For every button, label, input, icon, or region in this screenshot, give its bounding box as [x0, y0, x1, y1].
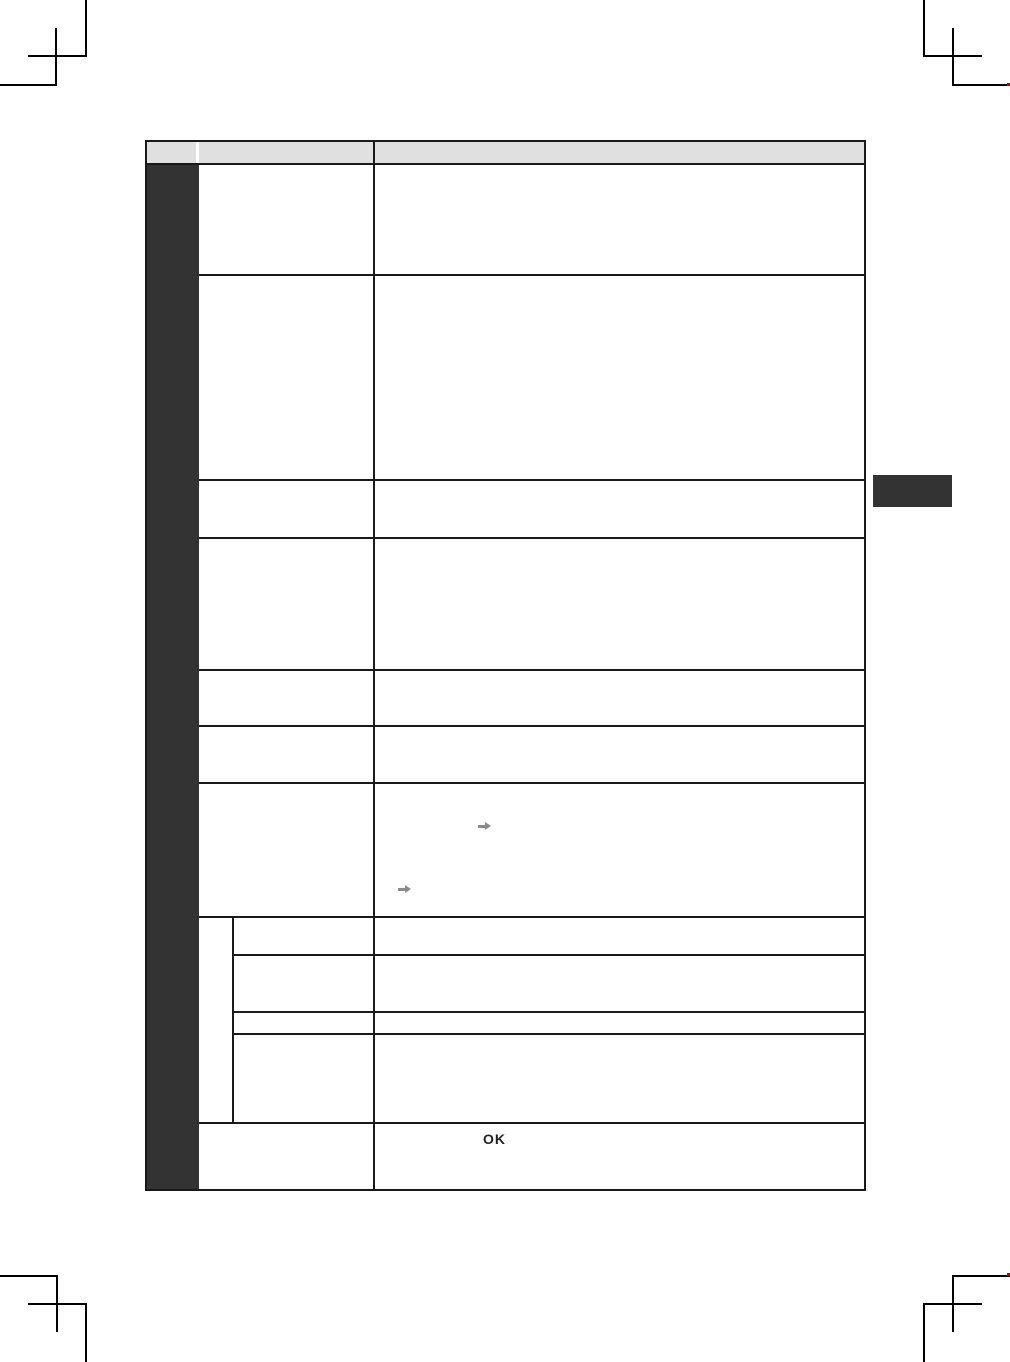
table-cell-sub4-content	[375, 1035, 864, 1122]
table-cell-row7-content	[375, 784, 864, 916]
table-header-cell-1	[146, 142, 196, 163]
table-cell-row5-content	[375, 671, 864, 725]
table-header-cell-3	[375, 142, 864, 163]
crop-mark-line	[952, 28, 954, 86]
ok-button-label: OK	[483, 1131, 506, 1147]
chapter-edge-tab	[873, 475, 952, 507]
crop-mark-line	[28, 1303, 87, 1305]
arrow-shaft	[478, 825, 485, 828]
table-grid-line	[145, 1189, 866, 1191]
table-cell-sub2-label	[234, 956, 373, 1011]
table-cell-row3-label	[199, 481, 373, 537]
table-cell-row6-label	[199, 727, 373, 782]
table-cell-row2-content	[375, 276, 864, 479]
crop-mark-line	[55, 28, 57, 86]
table-cell-row1-content	[375, 165, 864, 274]
table-grid-line	[145, 140, 866, 142]
chapter-sidebar-bar	[146, 165, 199, 1191]
table-cell-row4-content	[375, 539, 864, 669]
table-cell-sub2-content	[375, 956, 864, 1011]
table-grid-line	[864, 140, 866, 1191]
table-cell-row1-label	[199, 165, 373, 274]
table-cell-row12-content	[375, 1124, 864, 1189]
right-arrow-icon	[478, 822, 491, 831]
table-cell-row4-label	[199, 539, 373, 669]
crop-mark-line	[953, 84, 1010, 86]
table-cell-row7-label	[199, 784, 373, 916]
arrow-head	[485, 822, 491, 830]
table-cell-row12-label	[199, 1124, 373, 1189]
table-cell-sub1-content	[375, 918, 864, 954]
table-cell-sub3-label	[234, 1013, 373, 1033]
table-header-cell-2	[199, 142, 373, 163]
crop-mark-line	[0, 1275, 58, 1277]
crop-mark-line	[0, 84, 57, 86]
crop-mark-line	[923, 1303, 982, 1305]
crop-mark-line	[952, 1275, 1010, 1277]
table-cell-sub3-content	[375, 1013, 864, 1033]
table-cell-group-indent	[199, 918, 232, 1122]
page: OK	[0, 0, 1010, 1362]
table-cell-row6-content	[375, 727, 864, 782]
arrow-head	[405, 885, 411, 893]
table-cell-row5-label	[199, 671, 373, 725]
table-cell-row2-label	[199, 276, 373, 479]
table-cell-sub1-label	[234, 918, 373, 954]
crop-mark-line	[923, 0, 925, 57]
crop-mark-line	[85, 1303, 87, 1362]
table-cell-sub4-label	[234, 1035, 373, 1122]
right-arrow-icon	[398, 885, 411, 894]
crop-mark-line	[923, 1303, 925, 1362]
crop-mark-line	[85, 0, 87, 57]
table-grid-line	[145, 140, 147, 1191]
arrow-shaft	[398, 888, 405, 891]
crop-mark-line	[28, 55, 87, 57]
table-cell-row3-content	[375, 481, 864, 537]
